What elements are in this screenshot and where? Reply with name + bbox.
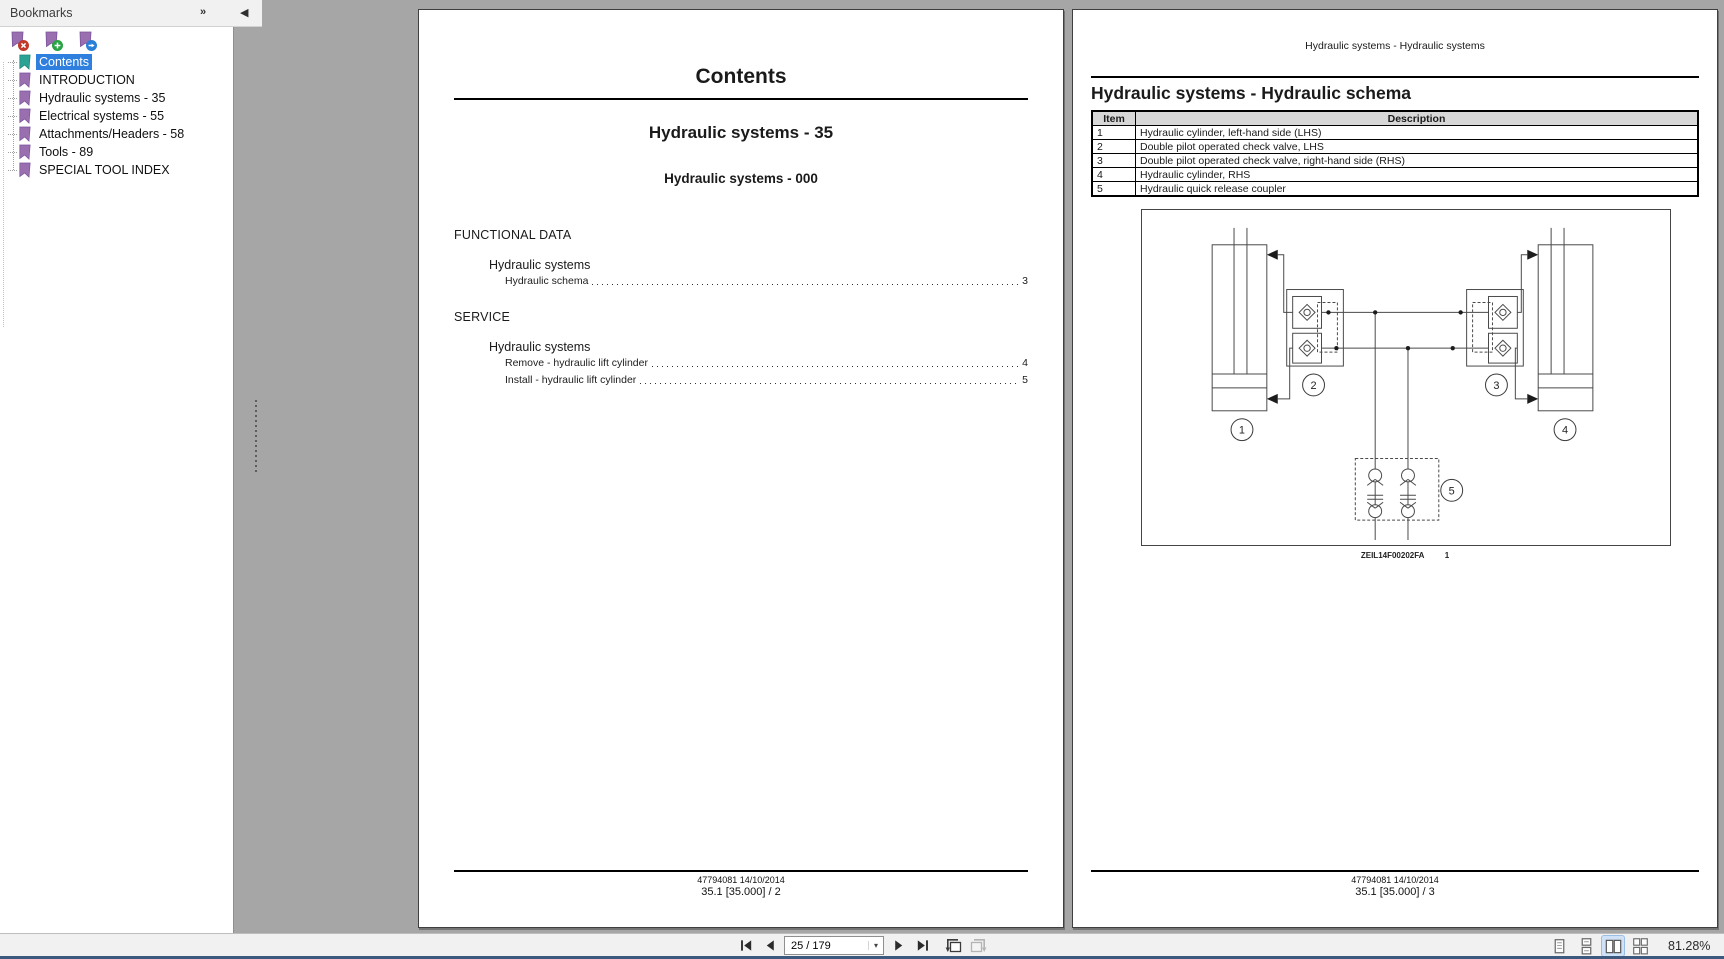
tree-connector (8, 152, 17, 153)
bookmark-item-special-tool-index[interactable]: SPECIAL TOOL INDEX (8, 161, 173, 179)
toc-group-hydraulic-systems-2: Hydraulic systems (489, 340, 590, 354)
bookmark-item-hydraulic-systems[interactable]: Hydraulic systems - 35 (8, 89, 168, 107)
schema-heading: Hydraulic systems - Hydraulic schema (1091, 83, 1411, 104)
toc-entry-label: Remove - hydraulic lift cylinder (505, 357, 648, 369)
heading-rule (1091, 76, 1699, 78)
hydraulic-schema-figure: 1 2 3 4 5 (1141, 209, 1671, 546)
delete-bookmark-icon[interactable] (8, 30, 30, 52)
bookmark-label[interactable]: Contents (36, 54, 92, 70)
bookmark-tree-line-outer (3, 62, 4, 327)
cell-description: Double pilot operated check valve, right… (1136, 154, 1699, 168)
bookmark-label[interactable]: Tools - 89 (36, 144, 96, 160)
running-header: Hydraulic systems - Hydraulic systems (1073, 40, 1717, 52)
panel-collapse-icon[interactable]: ◀ (240, 6, 248, 19)
title-rule (454, 98, 1028, 100)
status-bar: ▾ (0, 933, 1724, 959)
toc-entry-remove-lift-cylinder[interactable]: Remove - hydraulic lift cylinder 4 (505, 357, 1028, 369)
table-row: 4 Hydraulic cylinder, RHS (1092, 168, 1698, 182)
bookmark-flag-icon (17, 108, 32, 124)
facing-continuous-view-button[interactable] (1629, 936, 1651, 956)
toc-entry-page: 5 (1022, 374, 1028, 386)
figure-caption: ZEIL14F00202FA 1 (1141, 551, 1669, 560)
bookmarks-sidebar: Contents INTRODUCTION Hydraulic systems … (0, 26, 234, 934)
page-number-combobox[interactable]: ▾ (784, 936, 884, 955)
bookmark-label[interactable]: SPECIAL TOOL INDEX (36, 162, 173, 178)
dotted-leader (592, 281, 1018, 285)
toc-entry-page: 3 (1022, 275, 1028, 287)
col-header-description: Description (1136, 111, 1699, 126)
tree-connector (8, 134, 17, 135)
sidebar-splitter-grip[interactable] (255, 400, 257, 475)
footer-doc-number: 47794081 14/10/2014 (1073, 875, 1717, 885)
chevron-down-icon[interactable]: ▾ (868, 941, 883, 950)
bookmark-label[interactable]: Electrical systems - 55 (36, 108, 167, 124)
hydraulic-schema-drawing: 1 2 3 4 5 (1142, 210, 1668, 543)
zoom-level-label[interactable]: 81.28% (1668, 939, 1710, 953)
bookmarks-toolbar (8, 30, 98, 52)
toc-entry-label: Install - hydraulic lift cylinder (505, 374, 636, 386)
bookmark-item-attachments-headers[interactable]: Attachments/Headers - 58 (8, 125, 187, 143)
tree-connector (8, 62, 17, 63)
bookmark-item-introduction[interactable]: INTRODUCTION (8, 71, 138, 89)
figure-code: ZEIL14F00202FA (1361, 551, 1425, 560)
first-page-button[interactable] (736, 937, 756, 955)
dotted-leader (640, 380, 1018, 384)
goto-bookmark-icon[interactable] (76, 30, 98, 52)
previous-view-button[interactable] (944, 937, 964, 955)
bookmark-item-tools[interactable]: Tools - 89 (8, 143, 96, 161)
bookmark-flag-icon (17, 72, 32, 88)
diagram-label-5: 5 (1449, 485, 1455, 497)
bookmark-item-contents[interactable]: Contents (8, 53, 92, 71)
next-view-button[interactable] (968, 937, 988, 955)
bookmark-label[interactable]: INTRODUCTION (36, 72, 138, 88)
cell-description: Hydraulic cylinder, RHS (1136, 168, 1699, 182)
diagram-label-4: 4 (1562, 425, 1568, 437)
bookmarks-panel-title: Bookmarks (10, 6, 73, 20)
toc-entry-hydraulic-schema[interactable]: Hydraulic schema 3 (505, 275, 1028, 287)
item-description-table: Item Description 1 Hydraulic cylinder, l… (1091, 110, 1699, 197)
bookmark-label[interactable]: Hydraulic systems - 35 (36, 90, 168, 106)
bookmark-flag-icon (17, 162, 32, 178)
cell-item: 3 (1092, 154, 1136, 168)
document-page-right: Hydraulic systems - Hydraulic systems Hy… (1072, 9, 1718, 928)
single-page-view-button[interactable] (1548, 936, 1570, 956)
footer-rule (1091, 870, 1699, 872)
previous-page-button[interactable] (760, 937, 780, 955)
bookmark-flag-icon (17, 54, 32, 70)
bookmark-label[interactable]: Attachments/Headers - 58 (36, 126, 187, 142)
facing-pages-view-button[interactable] (1602, 936, 1624, 956)
toc-entry-label: Hydraulic schema (505, 275, 588, 287)
toc-entry-install-lift-cylinder[interactable]: Install - hydraulic lift cylinder 5 (505, 374, 1028, 386)
page-number-input[interactable] (785, 940, 868, 952)
tree-connector (8, 80, 17, 81)
cell-item: 4 (1092, 168, 1136, 182)
table-row: 2 Double pilot operated check valve, LHS (1092, 140, 1698, 154)
table-row: 3 Double pilot operated check valve, rig… (1092, 154, 1698, 168)
tree-connector (8, 116, 17, 117)
panel-expand-icon[interactable]: » (200, 6, 206, 18)
table-header-row: Item Description (1092, 111, 1698, 126)
section-heading: Hydraulic systems - 000 (419, 171, 1063, 186)
document-page-left: Contents Hydraulic systems - 35 Hydrauli… (418, 9, 1064, 928)
toc-group-hydraulic-systems: Hydraulic systems (489, 258, 590, 272)
diagram-label-3: 3 (1493, 380, 1499, 392)
add-bookmark-icon[interactable] (42, 30, 64, 52)
cell-description: Hydraulic cylinder, left-hand side (LHS) (1136, 126, 1699, 140)
bookmark-flag-icon (17, 144, 32, 160)
footer-page-ref: 35.1 [35.000] / 3 (1073, 886, 1717, 898)
page-layout-controls: 81.28% (1548, 936, 1710, 956)
cell-item: 2 (1092, 140, 1136, 154)
tree-connector (8, 98, 17, 99)
dotted-leader (652, 363, 1018, 367)
page-navigation: ▾ (736, 936, 988, 955)
table-row: 1 Hydraulic cylinder, left-hand side (LH… (1092, 126, 1698, 140)
footer-rule (454, 870, 1028, 872)
bookmarks-panel-header: Bookmarks » ◀ (0, 0, 262, 27)
diagram-label-2: 2 (1311, 380, 1317, 392)
page-title: Contents (419, 65, 1063, 89)
footer-doc-number: 47794081 14/10/2014 (419, 875, 1063, 885)
bookmark-item-electrical-systems[interactable]: Electrical systems - 55 (8, 107, 167, 125)
next-page-button[interactable] (888, 937, 908, 955)
footer-page-ref: 35.1 [35.000] / 2 (419, 886, 1063, 898)
continuous-view-button[interactable] (1575, 936, 1597, 956)
col-header-item: Item (1092, 111, 1136, 126)
chapter-heading: Hydraulic systems - 35 (419, 123, 1063, 143)
cell-description: Double pilot operated check valve, LHS (1136, 140, 1699, 154)
toc-section-functional-data: FUNCTIONAL DATA (454, 228, 571, 242)
pdf-viewer-window: Bookmarks » ◀ (0, 0, 1724, 959)
bookmark-flag-icon (17, 90, 32, 106)
cell-item: 1 (1092, 126, 1136, 140)
toc-section-service: SERVICE (454, 310, 510, 324)
bookmark-flag-icon (17, 126, 32, 142)
last-page-button[interactable] (912, 937, 932, 955)
tree-connector (8, 170, 17, 171)
toc-entry-page: 4 (1022, 357, 1028, 369)
table-row: 5 Hydraulic quick release coupler (1092, 182, 1698, 197)
figure-index: 1 (1445, 551, 1449, 560)
cell-item: 5 (1092, 182, 1136, 197)
cell-description: Hydraulic quick release coupler (1136, 182, 1699, 197)
diagram-label-1: 1 (1239, 425, 1245, 437)
